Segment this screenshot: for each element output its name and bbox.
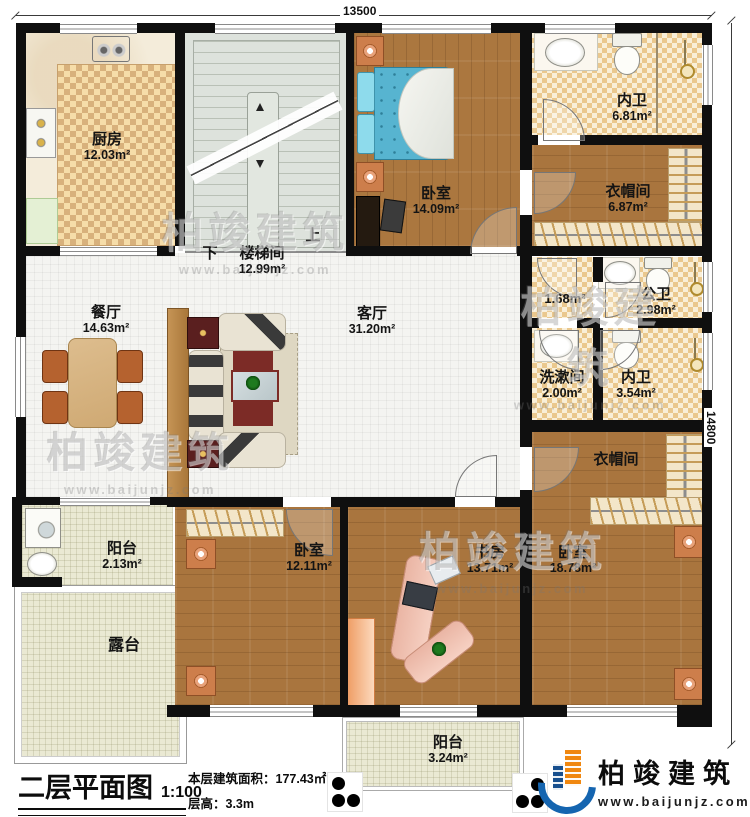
stair-arrow-down <box>256 160 264 168</box>
room-label-bedroom-top: 卧室 14.09m² <box>413 186 460 216</box>
stair-up-label: 上 <box>305 228 320 245</box>
room-area: 2.98m² <box>636 304 676 318</box>
room-label-cloak-right: 衣帽间 <box>593 452 638 469</box>
wall <box>593 257 603 282</box>
wall <box>12 497 22 585</box>
room-label-bedroom-right: 卧室 18.78m² <box>550 545 597 575</box>
wall <box>345 497 455 507</box>
company-logo-text: 柏竣建筑 www.baijunjz.com <box>598 752 750 809</box>
plant-icon <box>246 376 260 390</box>
room-label-balcony-bottom: 阳台 3.24m² <box>428 735 468 765</box>
room-name: 阳台 <box>102 541 142 558</box>
wall <box>340 507 348 705</box>
wall <box>313 705 400 717</box>
plant-icon <box>432 642 446 656</box>
company-logo-icon <box>538 748 594 806</box>
window <box>210 707 313 717</box>
room-name: 卧室 <box>286 543 332 560</box>
room-area: 14.09m² <box>413 203 460 217</box>
wall <box>491 23 545 33</box>
stair-down-label: 下 <box>202 246 217 263</box>
shower-rod <box>684 40 686 66</box>
room-name: 衣帽间 <box>605 184 650 201</box>
sofa-chaise <box>218 313 286 351</box>
nightstand <box>186 666 216 696</box>
title-block: 二层平面图 1:100 <box>18 766 202 816</box>
window <box>382 24 491 34</box>
tv-cabinet <box>356 196 380 248</box>
window <box>703 45 713 105</box>
right-dimension-label: 14800 <box>704 408 718 447</box>
floor-plan: 13500 14800 <box>0 0 750 817</box>
toilet-tank <box>612 33 642 47</box>
room-name: 内卫 <box>612 93 652 110</box>
room-label-kitchen: 厨房 12.03m² <box>84 132 131 162</box>
sink-icon <box>545 38 585 67</box>
wall <box>520 420 712 432</box>
wall <box>520 507 532 705</box>
logo-building-orange <box>565 750 581 786</box>
wall <box>16 417 26 503</box>
logo-building-blue <box>553 764 563 790</box>
sofa-main <box>188 350 224 440</box>
pillow <box>357 114 375 154</box>
room-label-dining: 餐厅 14.63m² <box>83 305 130 335</box>
wall <box>677 705 712 727</box>
room-name: 内卫 <box>616 370 656 387</box>
room-label-cloak-top: 衣帽间 6.87m² <box>605 184 650 214</box>
washing-machine-icon <box>25 508 61 548</box>
room-area: 12.11m² <box>286 560 332 574</box>
wardrobe-rack <box>590 497 704 525</box>
title-underline <box>18 808 186 816</box>
dining-chair <box>42 350 68 383</box>
room-name: 厨房 <box>84 132 131 149</box>
shower-rod <box>694 338 696 360</box>
shower-head-icon <box>690 358 704 372</box>
wall <box>495 497 532 507</box>
nightstand <box>186 539 216 569</box>
room-label-balcony-left: 阳台 2.13m² <box>102 541 142 571</box>
nightstand <box>674 668 704 700</box>
window <box>567 707 677 717</box>
shower-rod <box>694 262 696 284</box>
dot-marker <box>327 772 363 812</box>
stair-down-text: 下 <box>202 246 217 263</box>
wall <box>346 23 354 246</box>
sliding-door <box>60 247 157 256</box>
window <box>15 337 26 417</box>
room-label-terrace: 露台 <box>108 637 140 655</box>
media-cabinet <box>187 440 219 468</box>
room-name: 露台 <box>108 637 140 655</box>
pillow <box>357 72 375 112</box>
nightstand <box>356 162 384 192</box>
room-area: 13.71m² <box>467 562 514 576</box>
room-name: 客厅 <box>349 306 396 323</box>
window <box>703 333 713 390</box>
window <box>400 707 477 717</box>
room-area: 3.54m² <box>616 387 656 401</box>
study-wardrobe <box>347 618 375 708</box>
wall <box>16 23 26 337</box>
top-dimension-label: 13500 <box>340 4 379 18</box>
wall <box>335 23 382 33</box>
room-label-living: 客厅 31.20m² <box>349 306 396 336</box>
shower-head-icon <box>680 64 695 79</box>
wardrobe-rack <box>668 148 704 222</box>
room-label-closet-small: 1.68m² <box>544 292 585 306</box>
stair-up-text: 上 <box>305 228 320 245</box>
wall <box>702 105 712 262</box>
room-label-bath-top: 内卫 6.81m² <box>612 93 652 123</box>
room-area: 31.20m² <box>349 323 396 337</box>
plan-title: 二层平面图 <box>18 766 153 805</box>
room-name: 洗漱间 <box>539 370 584 387</box>
sofa-chaise <box>218 432 286 468</box>
wall <box>520 215 532 247</box>
shower-partition <box>656 33 658 133</box>
room-name: 阳台 <box>428 735 468 752</box>
sink-icon <box>27 552 57 576</box>
room-area: 1.68m² <box>544 292 585 306</box>
floor-height-text: 层高：3.3m <box>188 793 326 812</box>
room-area: 2.13m² <box>102 558 142 572</box>
wall <box>702 23 712 45</box>
floor-area-text: 本层建筑面积：177.43㎡ <box>188 768 326 787</box>
terrace-floor <box>14 585 187 764</box>
room-label-stairwell: 楼梯间 12.99m² <box>239 246 286 276</box>
window <box>215 24 335 34</box>
company-website: www.baijunjz.com <box>598 794 750 809</box>
dining-chair <box>117 350 143 383</box>
tv-wall <box>167 308 189 499</box>
wall <box>638 318 712 328</box>
room-label-bedroom-left: 卧室 12.11m² <box>286 543 332 573</box>
kitchen-sink-icon <box>26 108 56 158</box>
room-area: 3.24m² <box>428 752 468 766</box>
wall <box>157 246 175 256</box>
wall <box>577 318 600 328</box>
room-label-washroom: 洗漱间 2.00m² <box>539 370 584 400</box>
wall <box>517 246 712 256</box>
dining-table <box>68 338 117 428</box>
company-name: 柏竣建筑 <box>598 752 750 791</box>
stair-arrow-up <box>256 103 264 111</box>
toilet-icon <box>614 46 640 75</box>
room-label-bath-mid: 内卫 3.54m² <box>616 370 656 400</box>
wall <box>615 23 712 33</box>
right-dimension-line <box>731 23 732 745</box>
room-area: 6.87m² <box>605 201 650 215</box>
sliding-door <box>60 498 150 506</box>
wardrobe-rack <box>666 434 704 500</box>
room-name: 餐厅 <box>83 305 130 322</box>
tv-icon <box>380 199 406 234</box>
wall <box>167 705 210 717</box>
wall <box>520 318 539 328</box>
room-name: 公卫 <box>636 287 676 304</box>
window <box>545 24 615 34</box>
wall <box>16 246 60 256</box>
wardrobe-rack <box>534 222 704 248</box>
shower-head-icon <box>690 282 704 296</box>
room-area: 12.03m² <box>84 149 131 163</box>
window <box>60 24 137 34</box>
room-area: 14.63m² <box>83 322 130 336</box>
dining-chair <box>117 391 143 424</box>
room-name: 楼梯间 <box>239 246 286 263</box>
wall <box>167 497 283 507</box>
wall <box>580 135 712 145</box>
wall <box>477 705 567 717</box>
wardrobe-rack <box>186 509 284 537</box>
nightstand <box>356 36 384 66</box>
wall <box>520 23 532 170</box>
wall <box>532 135 538 145</box>
wall <box>12 577 62 587</box>
wall <box>520 247 532 447</box>
room-area: 6.81m² <box>612 110 652 124</box>
room-name: 书房 <box>467 545 514 562</box>
media-cabinet <box>187 317 219 349</box>
wall <box>346 246 472 256</box>
nightstand <box>674 526 704 558</box>
room-label-public-bath: 公卫 2.98m² <box>636 287 676 317</box>
room-area: 18.78m² <box>550 562 597 576</box>
stove-icon <box>92 36 130 62</box>
room-name: 卧室 <box>550 545 597 562</box>
room-area: 12.99m² <box>239 263 286 277</box>
title-stats: 本层建筑面积：177.43㎡ 层高：3.3m <box>188 768 326 812</box>
room-area: 2.00m² <box>539 387 584 401</box>
wall <box>175 23 185 246</box>
dining-chair <box>42 391 68 424</box>
kitchen-mat <box>26 198 58 244</box>
stair-landing-strip <box>247 92 279 247</box>
room-name: 衣帽间 <box>593 452 638 469</box>
room-name: 卧室 <box>413 186 460 203</box>
room-label-study: 书房 13.71m² <box>467 545 514 575</box>
window <box>703 262 713 312</box>
